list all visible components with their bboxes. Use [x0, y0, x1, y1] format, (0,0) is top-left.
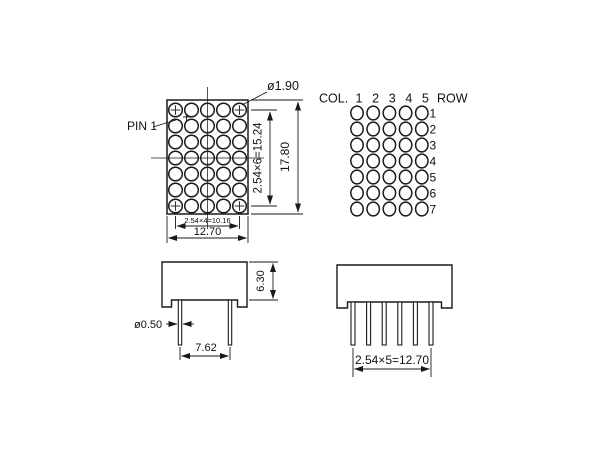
- led-dot: [233, 167, 247, 181]
- col-number: 1: [356, 92, 363, 106]
- pinout-dot: [399, 202, 411, 216]
- pinout-dot: [416, 138, 428, 152]
- component-pin: [228, 300, 231, 345]
- pinout-dot: [383, 186, 395, 200]
- led-dot: [185, 183, 199, 197]
- led-dot: [185, 199, 199, 213]
- pinout-dot: [383, 202, 395, 216]
- pinout-dot: [351, 138, 363, 152]
- row-number: 6: [430, 187, 437, 201]
- col-number: 3: [389, 92, 396, 106]
- pinout-view: COL. 12345 ROW 1234567: [319, 92, 468, 217]
- col-number: 2: [372, 92, 379, 106]
- pinout-dot: [367, 106, 379, 120]
- side-view-side: 2.54×5=12.70: [337, 265, 452, 377]
- led-dot: [217, 199, 231, 213]
- pinout-dot: [351, 122, 363, 136]
- col-number: 4: [405, 92, 412, 106]
- pin-spacing-dimension: 7.62: [195, 342, 216, 354]
- component-pin: [178, 300, 181, 345]
- pin-group: [351, 302, 433, 345]
- pinout-dot: [383, 138, 395, 152]
- led-dot: [217, 103, 231, 117]
- pinout-dot: [383, 154, 395, 168]
- row-number: 4: [430, 155, 437, 169]
- row-number: 7: [430, 203, 437, 217]
- col-number: 5: [422, 92, 429, 106]
- row-pitch-dimension: 2.54×6=15.24: [253, 122, 265, 194]
- led-dot: [169, 135, 183, 149]
- pinout-dot-grid: [351, 106, 428, 216]
- col-number-row: 12345: [356, 92, 429, 106]
- pinout-dot: [399, 186, 411, 200]
- component-pin: [367, 302, 371, 345]
- body-height-dimension: 6.30: [255, 270, 267, 291]
- led-dot: [169, 167, 183, 181]
- pinout-dot: [367, 202, 379, 216]
- led-dot: [217, 167, 231, 181]
- pinout-dot: [399, 170, 411, 184]
- pinout-dot: [351, 106, 363, 120]
- package-side-outline: [162, 262, 247, 307]
- pinout-dot: [416, 202, 428, 216]
- component-pin: [382, 302, 386, 345]
- pinout-dot: [399, 106, 411, 120]
- pinout-dot: [416, 122, 428, 136]
- row-number: 2: [430, 123, 437, 137]
- pinout-dot: [367, 154, 379, 168]
- component-pin: [429, 302, 433, 345]
- drawing-canvas: PIN 1 ø1.90 2.54×6=15.24 17.80 2.54×4=10…: [0, 0, 600, 450]
- component-pin: [413, 302, 417, 345]
- width-dimension: 12.70: [194, 226, 222, 238]
- front-view: PIN 1 ø1.90 2.54×6=15.24 17.80 2.54×4=10…: [127, 79, 303, 243]
- led-dot: [185, 119, 199, 133]
- led-dot: [233, 183, 247, 197]
- pin-row-dimension: 2.54×5=12.70: [355, 353, 429, 367]
- pin-group: [178, 300, 231, 345]
- side-view-front: 6.30 ø0.50 7.62: [134, 262, 278, 360]
- led-dot: [233, 119, 247, 133]
- led-dot: [217, 183, 231, 197]
- pin1-label: PIN 1: [127, 119, 157, 133]
- pinout-dot: [351, 154, 363, 168]
- pinout-dot: [351, 186, 363, 200]
- led-diameter-label: ø1.90: [267, 79, 299, 93]
- component-pin: [351, 302, 355, 345]
- pinout-dot: [351, 202, 363, 216]
- led-dot: [185, 167, 199, 181]
- row-number: 5: [430, 171, 437, 185]
- pinout-dot: [416, 186, 428, 200]
- pinout-dot: [399, 154, 411, 168]
- pinout-dot: [367, 122, 379, 136]
- pinout-dot: [351, 170, 363, 184]
- led-dot: [217, 119, 231, 133]
- height-dimension: 17.80: [278, 142, 292, 172]
- pinout-dot: [383, 170, 395, 184]
- pinout-dot: [399, 122, 411, 136]
- pinout-dot: [416, 106, 428, 120]
- led-dot: [233, 135, 247, 149]
- row-number-column: 1234567: [430, 107, 437, 217]
- led-matrix-technical-drawing: PIN 1 ø1.90 2.54×6=15.24 17.80 2.54×4=10…: [0, 0, 600, 450]
- led-dot: [185, 135, 199, 149]
- led-diameter-leader-line: [242, 92, 267, 105]
- pinout-dot: [383, 122, 395, 136]
- row-number: 3: [430, 139, 437, 153]
- pinout-dot: [416, 170, 428, 184]
- pinout-dot: [367, 186, 379, 200]
- pinout-dot: [416, 154, 428, 168]
- component-pin: [398, 302, 402, 345]
- pinout-dot: [383, 106, 395, 120]
- pin-diameter-label: ø0.50: [134, 319, 162, 331]
- led-dot: [169, 183, 183, 197]
- row-header-label: ROW: [437, 92, 468, 106]
- col-pitch-dimension: 2.54×4=10.16: [184, 216, 230, 225]
- led-dot: [217, 135, 231, 149]
- col-header-label: COL.: [319, 92, 348, 106]
- pinout-dot: [367, 170, 379, 184]
- row-number: 1: [430, 107, 437, 121]
- pinout-dot: [367, 138, 379, 152]
- pinout-dot: [399, 138, 411, 152]
